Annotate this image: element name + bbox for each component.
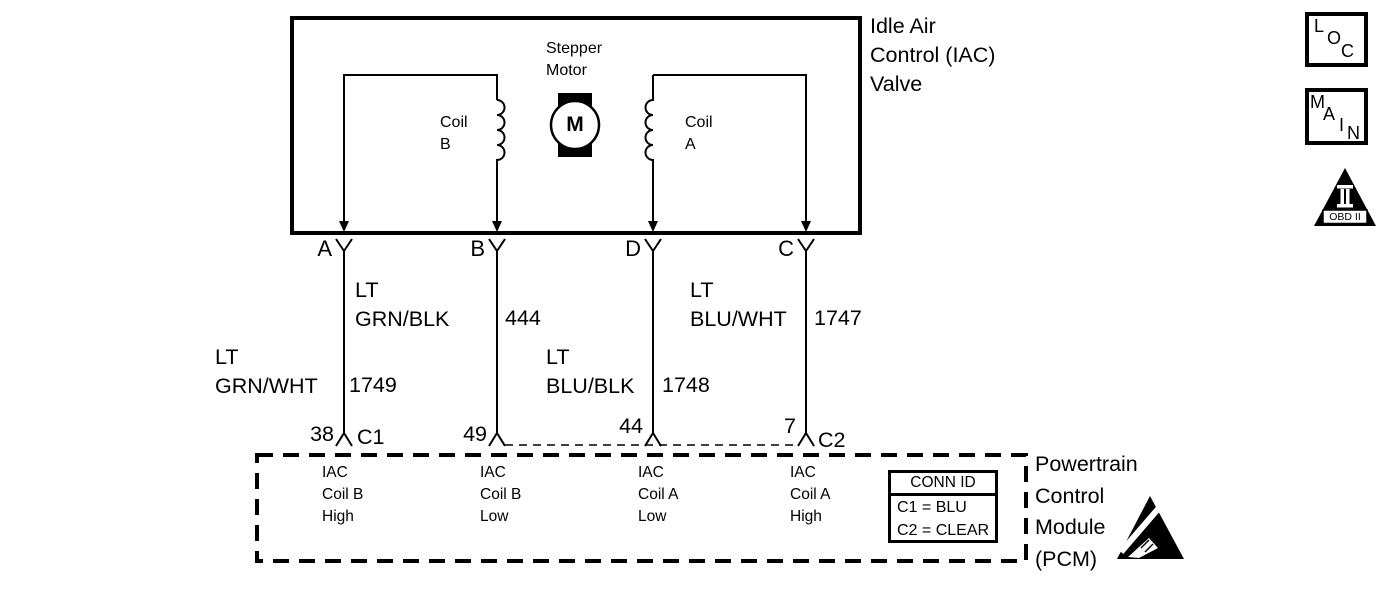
pcm-pin-7: 7 [756, 415, 796, 438]
stepper-motor-label: Stepper Motor [546, 38, 602, 81]
diagram-linework [0, 0, 1378, 612]
coil-b-low-arrow [492, 221, 502, 232]
pcm-function-coil-b-low: IAC Coil B Low [480, 462, 521, 528]
wire-c-color-label: LT BLU/WHT [690, 276, 787, 333]
loc-letter-c: C [1341, 42, 1354, 60]
wire-b-circuit-number: 444 [505, 304, 541, 333]
pcm-pin-38-connector [336, 433, 352, 446]
wiring-diagram-page: Stepper Motor Coil B Coil A M Idle Air C… [0, 0, 1378, 612]
main-letter-n: N [1347, 124, 1360, 142]
coil-a-winding-symbol [646, 75, 653, 222]
terminal-a-connector [336, 239, 352, 251]
pcm-title: Powertrain Control Module (PCM) [1035, 449, 1138, 575]
pcm-pin-44-connector [645, 433, 661, 446]
coil-b-label: Coil B [440, 112, 468, 155]
pcm-function-coil-b-high: IAC Coil B High [322, 462, 363, 528]
conn-id-title: CONN ID [891, 473, 995, 496]
connector-c1-label: C1 [357, 423, 384, 452]
obd2-numeral-bar-2 [1346, 189, 1350, 204]
main-letter-a: A [1323, 105, 1335, 123]
pcm-pin-49: 49 [447, 423, 487, 446]
loc-icon: L O C [1305, 12, 1368, 67]
coil-a-loop-line [653, 75, 806, 222]
connector-c2-label: C2 [818, 426, 845, 455]
obd2-numeral-top-serif [1337, 185, 1353, 189]
main-letter-i: I [1339, 116, 1344, 134]
wire-b-color-label: LT GRN/BLK [355, 276, 449, 333]
coil-a-high-arrow [801, 221, 811, 232]
pcm-pin-49-connector [489, 433, 505, 446]
terminal-d-connector [645, 239, 661, 251]
pcm-pin-44: 44 [603, 415, 643, 438]
terminal-c-label: C [774, 237, 794, 261]
wire-d-color-label: LT BLU/BLK [546, 343, 634, 400]
wire-c-circuit-number: 1747 [814, 304, 862, 333]
conn-id-row-c1: C1 = BLU [891, 496, 995, 519]
terminal-c-connector [798, 239, 814, 251]
iac-valve-title: Idle Air Control (IAC) Valve [870, 12, 995, 99]
loc-letter-l: L [1314, 17, 1324, 35]
coil-a-low-arrow [648, 221, 658, 232]
wire-a-circuit-number: 1749 [349, 371, 397, 400]
conn-id-row-c2: C2 = CLEAR [891, 519, 995, 542]
wire-d-circuit-number: 1748 [662, 371, 710, 400]
coil-a-label: Coil A [685, 112, 713, 155]
wire-a-color-label: LT GRN/WHT [215, 343, 318, 400]
obd2-label: OBD II [1323, 211, 1367, 223]
coil-b-high-arrow [339, 221, 349, 232]
pcm-pin-38: 38 [294, 423, 334, 446]
obd2-numeral-bottom-serif [1337, 204, 1353, 208]
terminal-a-label: A [312, 237, 332, 261]
loc-letter-o: O [1327, 29, 1341, 47]
pcm-function-coil-a-high: IAC Coil A High [790, 462, 831, 528]
coil-b-winding-symbol [497, 100, 505, 222]
terminal-b-label: B [465, 237, 485, 261]
pcm-function-coil-a-low: IAC Coil A Low [638, 462, 679, 528]
pcm-pin-7-connector [798, 433, 814, 446]
coil-b-loop-line [344, 75, 497, 222]
main-icon: M A I N [1305, 88, 1368, 145]
obd2-numeral-bar-1 [1341, 189, 1345, 204]
terminal-b-connector [489, 239, 505, 251]
conn-id-table: CONN ID C1 = BLU C2 = CLEAR [888, 470, 998, 543]
motor-symbol-letter: M [563, 113, 587, 137]
terminal-d-label: D [621, 237, 641, 261]
